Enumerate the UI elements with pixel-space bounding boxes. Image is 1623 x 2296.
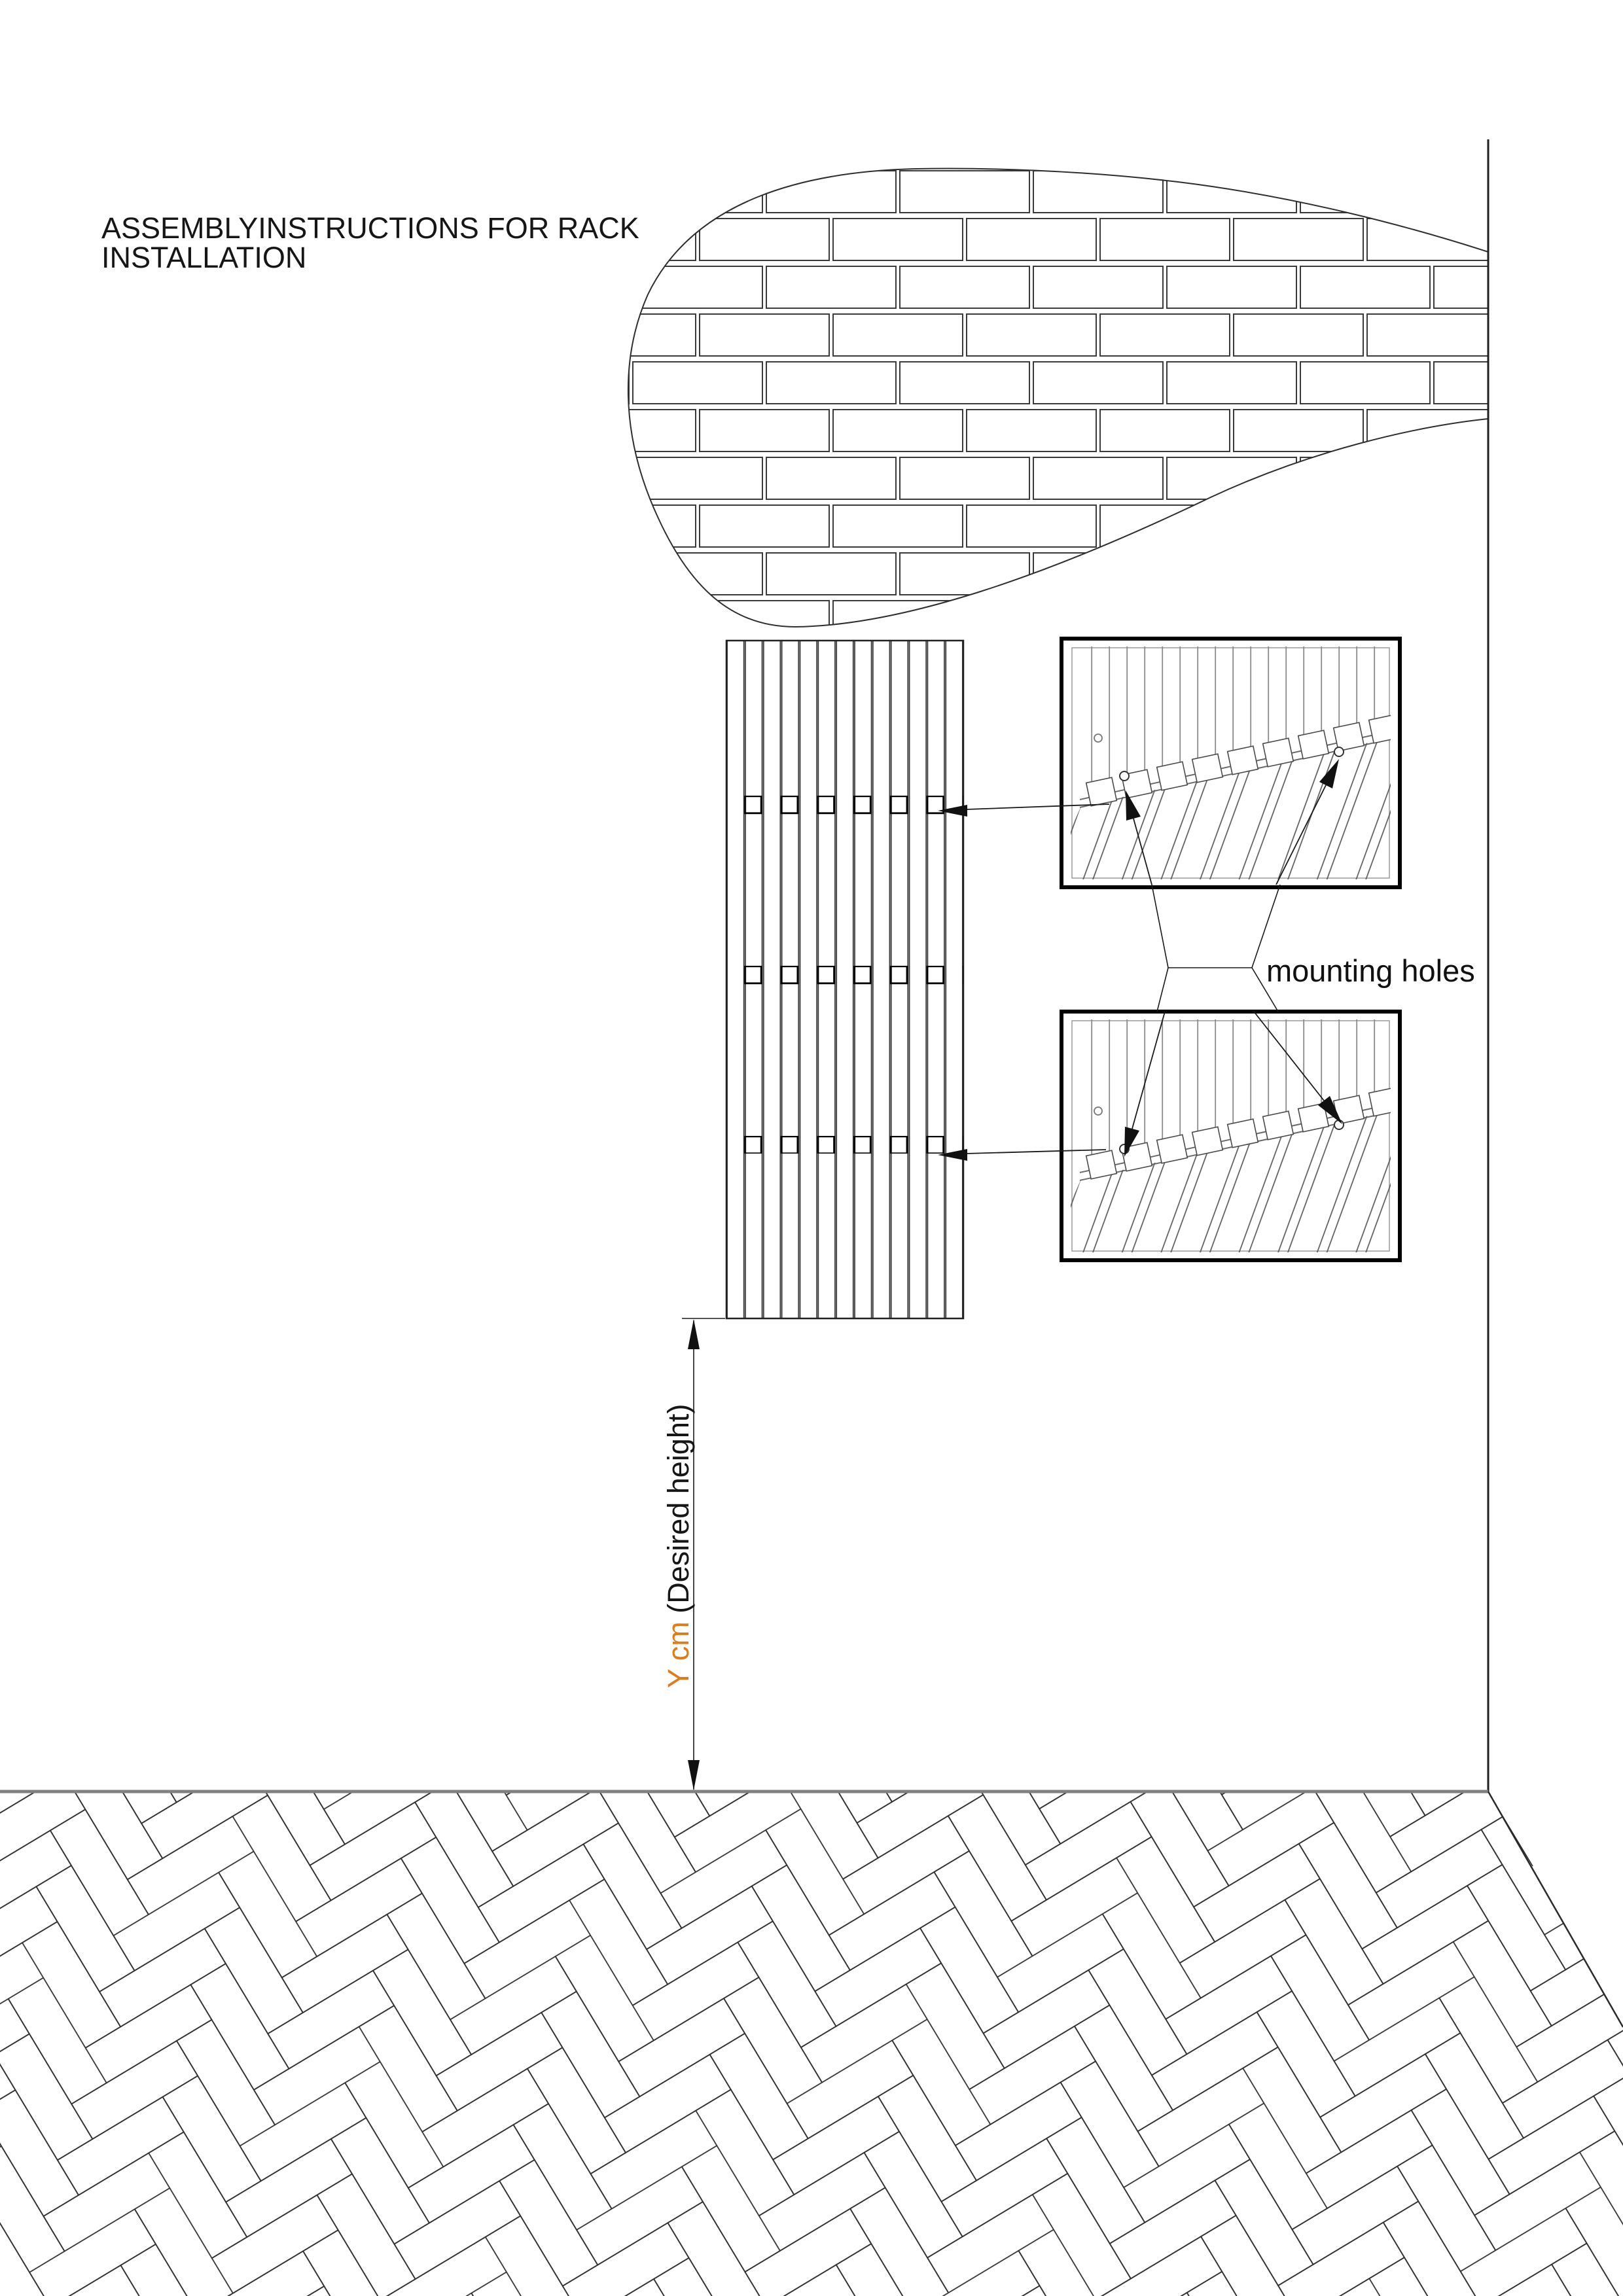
detail-box-1 [1061, 639, 1400, 887]
dimension-value: Y cm [662, 1621, 695, 1688]
mounting-holes-label: mounting holes [1266, 953, 1475, 988]
dimension-suffix: (Desired height) [662, 1404, 695, 1622]
dimension-label: Y cm (Desired height) [662, 1404, 695, 1688]
floor-herringbone-pattern [0, 1793, 1623, 2296]
title-line-1: ASSEMBLYINSTRUCTIONS FOR RACK [101, 211, 639, 245]
title-line-2: INSTALLATION [101, 241, 306, 274]
technical-drawing: Y cm (Desired height) mounting holes ASS… [0, 0, 1623, 2296]
assembly-instructions-page: Y cm (Desired height) mounting holes ASS… [0, 0, 1623, 2296]
rack [726, 641, 963, 1318]
detail-box-2 [1061, 1012, 1400, 1260]
floor [0, 1792, 1623, 2296]
rack-mounting-holes [726, 796, 963, 1154]
